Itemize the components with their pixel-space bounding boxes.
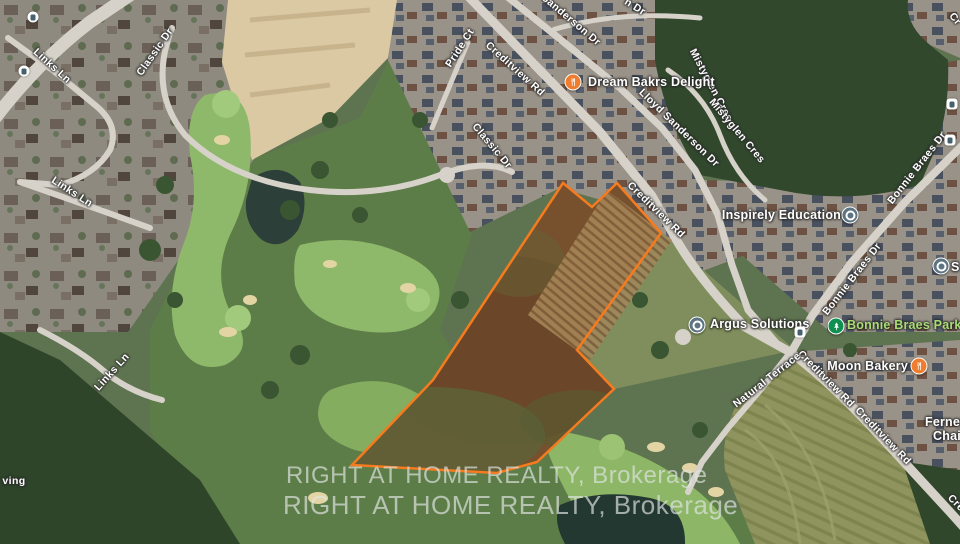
poi-label-fernex-line2[interactable]: Chain [933, 429, 960, 443]
restaurant-pin-icon[interactable] [565, 74, 582, 91]
fork-knife-icon [569, 78, 578, 87]
brokerage-watermark-line2: RIGHT AT HOME REALTY, Brokerage [283, 490, 738, 521]
brokerage-watermark-line1: RIGHT AT HOME REALTY, Brokerage [286, 462, 707, 490]
poi-label-dream-bakrs-delight[interactable]: Dream Bakrs Delight [588, 75, 715, 89]
transit-stop-icon[interactable] [28, 12, 39, 23]
fork-knife-icon [915, 362, 924, 371]
poi-label-bonnie-braes-park[interactable]: Bonnie Braes Park [847, 318, 960, 332]
business-pin-icon[interactable] [842, 207, 859, 224]
park-pin-icon[interactable] [828, 318, 845, 335]
business-pin-icon[interactable] [933, 258, 950, 275]
poi-label-moon-bakery[interactable]: Moon Bakery [827, 359, 908, 373]
transit-stop-icon[interactable] [947, 99, 958, 110]
street-label-partial-ving: ving [2, 475, 25, 487]
satellite-map[interactable]: Links Ln Links Ln Links Ln Classic Dr Cl… [0, 0, 960, 544]
poi-label-fernex-line1[interactable]: Fernex C [925, 415, 960, 429]
transit-stop-icon[interactable] [795, 327, 806, 338]
poi-label-partial-s[interactable]: S [951, 260, 960, 274]
transit-stop-icon[interactable] [945, 135, 956, 146]
restaurant-pin-icon[interactable] [911, 358, 928, 375]
transit-stop-icon[interactable] [19, 66, 30, 77]
tree-icon [831, 321, 841, 331]
business-pin-icon[interactable] [689, 317, 706, 334]
poi-label-inspirely-education[interactable]: Inspirely Education [722, 208, 841, 222]
